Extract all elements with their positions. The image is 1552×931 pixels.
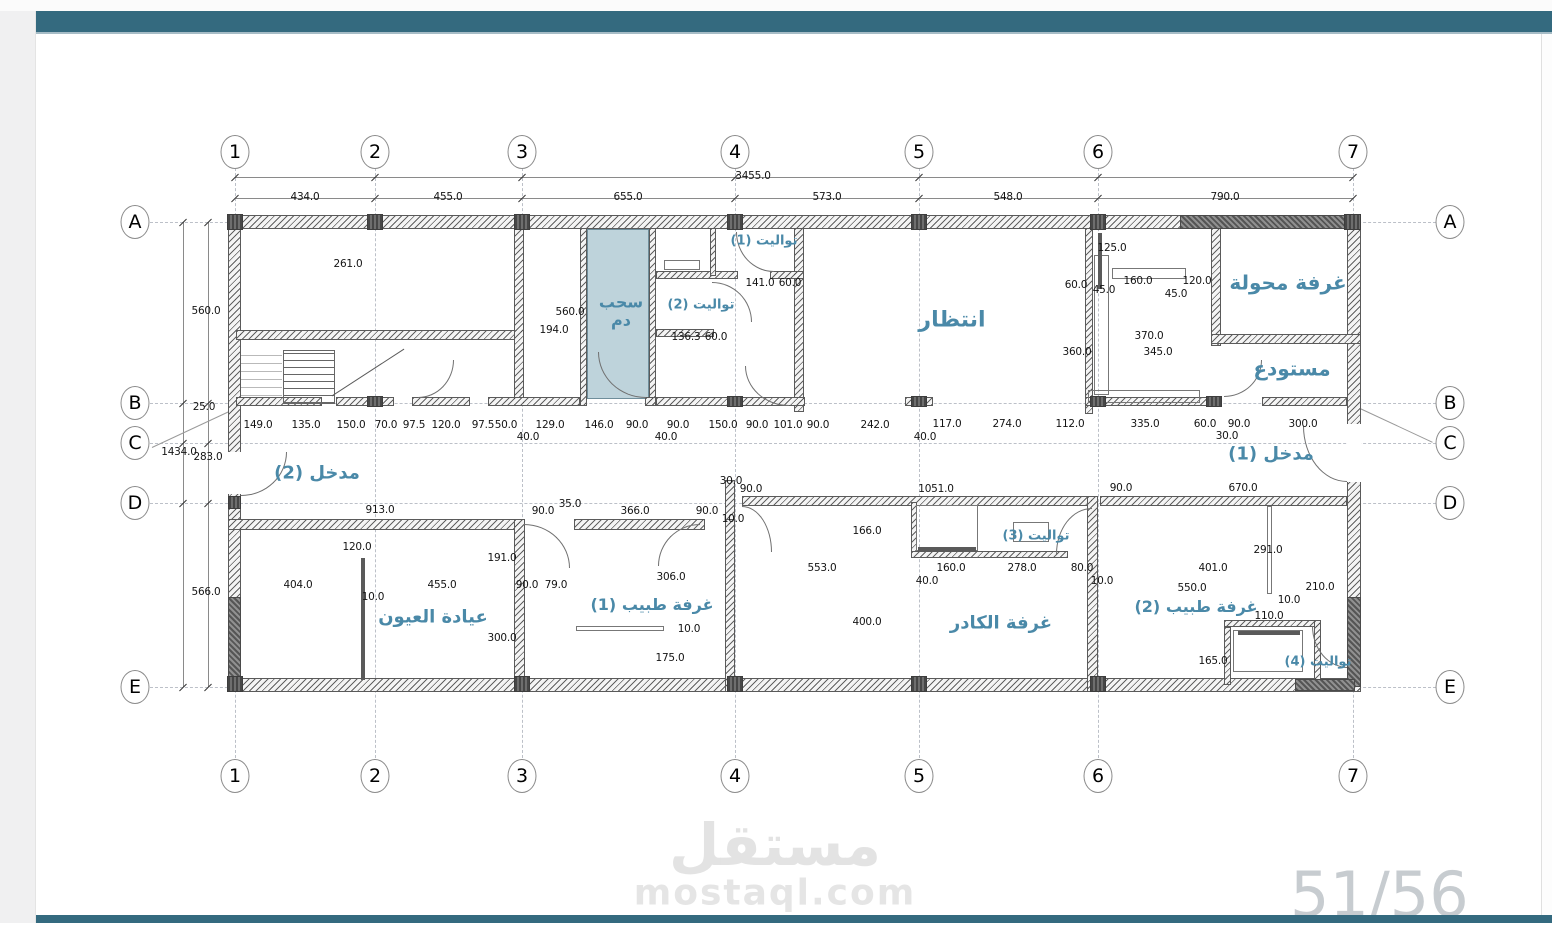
grid-bubble-bottom-1: 1 — [221, 759, 250, 793]
dimension-label: 90.0 — [807, 419, 830, 431]
watermark-latin: mostaql.com — [634, 873, 917, 914]
column — [1206, 396, 1222, 407]
wall — [514, 228, 524, 406]
dimension-label: 278.0 — [1007, 562, 1036, 574]
column — [227, 676, 243, 692]
dimension-label: 70.0 — [375, 419, 398, 431]
dimension-label: 90.0 — [746, 419, 769, 431]
partition — [361, 558, 365, 680]
dimension-label: 191.0 — [487, 552, 516, 564]
dimension-label: 129.0 — [535, 419, 564, 431]
toilet3-counter-edge — [918, 547, 976, 551]
grid-bubble-top-5: 5 — [905, 135, 934, 169]
column — [727, 214, 743, 230]
wall — [228, 519, 520, 530]
wall — [656, 271, 738, 279]
wall — [911, 551, 1068, 558]
dimension-label: 160.0 — [936, 562, 965, 574]
room-label-toilet-4: تواليت (4) — [1285, 656, 1352, 671]
dimension-label: 10.0 — [678, 623, 701, 635]
dimension-label: 455.0 — [427, 579, 456, 591]
header-bar — [36, 11, 1552, 34]
footer-bar — [36, 915, 1552, 923]
wall — [1211, 228, 1221, 346]
dimension-label: 60.0 — [779, 277, 802, 289]
wall — [1262, 397, 1347, 406]
dimension-label: 90.0 — [1110, 482, 1133, 494]
shelf — [576, 626, 664, 631]
column — [727, 396, 743, 407]
grid-bubble-left-E: E — [121, 670, 150, 704]
dimension-label: 434.0 — [290, 191, 319, 203]
grid-bubble-left-D: D — [121, 486, 150, 520]
dimension-label: 110.0 — [1254, 610, 1283, 622]
column — [1090, 676, 1106, 692]
dimension-label: 35.0 — [559, 498, 582, 510]
dimension-label: 125.0 — [1097, 242, 1126, 254]
door-arc — [742, 506, 772, 552]
grid-bubble-bottom-2: 2 — [361, 759, 390, 793]
room-label-toilet-1: تواليت (1) — [731, 235, 798, 250]
dimension-label: 345.0 — [1143, 346, 1172, 358]
grid-bubble-right-E: E — [1436, 670, 1465, 704]
dimension-label: 335.0 — [1130, 418, 1159, 430]
dimension-label: 120.0 — [342, 541, 371, 553]
column — [514, 214, 530, 230]
dimension-label: 913.0 — [365, 504, 394, 516]
wall — [236, 330, 522, 340]
dimension-label: 50.0 — [495, 419, 518, 431]
dimension-label: 306.0 — [656, 571, 685, 583]
grid-leader-c-left — [152, 408, 236, 448]
wall-dark-segment — [228, 597, 241, 680]
column — [228, 496, 241, 509]
stairs-dashed — [240, 350, 282, 404]
dimension-label: 1434.0 — [161, 446, 197, 458]
column — [911, 676, 927, 692]
door-opening — [228, 452, 241, 494]
dimension-label: 261.0 — [333, 258, 362, 270]
dimension-label: 550.0 — [1177, 582, 1206, 594]
grid-bubble-right-D: D — [1436, 486, 1465, 520]
dimension-label: 60.0 — [1194, 418, 1217, 430]
dim-line-top-segments — [235, 198, 1353, 199]
stairs-diagonal — [332, 349, 405, 397]
wall — [794, 228, 804, 412]
grid-bubble-left-A: A — [121, 205, 150, 239]
dimension-label: 90.0 — [1228, 418, 1251, 430]
room-label-storage: مستودع — [1253, 358, 1330, 381]
sink — [664, 260, 700, 270]
wall — [412, 397, 470, 406]
room-label-toilet-3: تواليت (3) — [1003, 530, 1070, 545]
room-label-waiting: انتظار — [918, 307, 985, 332]
grid-bubble-top-2: 2 — [361, 135, 390, 169]
dimension-label: 90.0 — [532, 505, 555, 517]
toilet4-counter-edge — [1238, 631, 1300, 635]
room-label-blood-draw: سحب دم — [599, 294, 643, 331]
grid-bubble-right-A: A — [1436, 205, 1465, 239]
door-opening — [1347, 424, 1361, 482]
dimension-label: 97.5 — [403, 419, 426, 431]
dimension-label: 670.0 — [1228, 482, 1257, 494]
wall — [488, 397, 580, 406]
wall — [336, 397, 394, 406]
dimension-label: 117.0 — [932, 418, 961, 430]
dimension-label: 1051.0 — [918, 483, 954, 495]
watermark-arabic: مستقل — [669, 811, 881, 879]
grid-bubble-top-7: 7 — [1339, 135, 1368, 169]
dimension-label: 300.0 — [487, 632, 516, 644]
dimension-label: 553.0 — [807, 562, 836, 574]
dimension-label: 60.0 — [705, 331, 728, 343]
room-label-entrance-2: مدخل (2) — [274, 464, 360, 485]
column — [911, 214, 927, 230]
dimension-label: 60.0 — [1065, 279, 1088, 291]
dimension-label: 165.0 — [1198, 655, 1227, 667]
page-left-margin — [0, 0, 36, 923]
dimension-label: 45.0 — [1165, 288, 1188, 300]
grid-bubble-right-C: C — [1436, 426, 1465, 460]
dimension-label: 560.0 — [555, 306, 584, 318]
wall-dark-segment — [1347, 597, 1361, 687]
column — [727, 676, 743, 692]
column — [227, 214, 243, 230]
dimension-label: 136.3 — [671, 331, 700, 343]
dimension-label: 90.0 — [696, 505, 719, 517]
dimension-label: 141.0 — [745, 277, 774, 289]
dimension-label: 25.0 — [193, 401, 216, 413]
dimension-label: 573.0 — [812, 191, 841, 203]
grid-bubble-top-1: 1 — [221, 135, 250, 169]
dimension-label: 655.0 — [613, 191, 642, 203]
dimension-label: 149.0 — [243, 419, 272, 431]
dimension-label: 90.0 — [667, 419, 690, 431]
door-arc — [524, 524, 570, 568]
dimension-label: 40.0 — [655, 431, 678, 443]
dimension-label: 97.5 — [472, 419, 495, 431]
door-arc — [658, 524, 700, 566]
wall-dark-segment — [1295, 679, 1355, 691]
dimension-label: 112.0 — [1055, 418, 1084, 430]
grid-bubble-bottom-3: 3 — [508, 759, 537, 793]
dimension-label: 10.0 — [362, 591, 385, 603]
floor-plan-drawing: 11223344556677AABBCCDDEE3455.0434.0455.0… — [0, 0, 1552, 923]
dimension-label: 90.0 — [740, 483, 763, 495]
column — [514, 676, 530, 692]
wall — [725, 519, 735, 692]
dimension-label: 40.0 — [916, 575, 939, 587]
dimension-label: 175.0 — [655, 652, 684, 664]
room-label-doctor-1: غرفة طبيب (1) — [590, 596, 713, 614]
dimension-label: 79.0 — [545, 579, 568, 591]
dimension-label: 30.0 — [1216, 430, 1239, 442]
wall-exterior-bottom — [228, 678, 1360, 692]
room-label-toilet-2: تواليت (2) — [668, 299, 735, 314]
dimension-label: 360.0 — [1062, 346, 1091, 358]
dimension-label: 166.0 — [852, 525, 881, 537]
dimension-label: 80.0 — [1071, 562, 1094, 574]
stairs — [283, 350, 335, 404]
dimension-label: 150.0 — [708, 419, 737, 431]
dimension-label: 455.0 — [433, 191, 462, 203]
dimension-label: 146.0 — [584, 419, 613, 431]
dimension-label: 160.0 — [1123, 275, 1152, 287]
dimension-label: 242.0 — [860, 419, 889, 431]
dimension-label: 401.0 — [1198, 562, 1227, 574]
wall — [1211, 334, 1361, 344]
floor-plan-page: 11223344556677AABBCCDDEE3455.0434.0455.0… — [0, 0, 1552, 923]
dimension-label: 10.0 — [1091, 575, 1114, 587]
grid-leader-c-right — [1360, 408, 1433, 443]
dimension-label: 790.0 — [1210, 191, 1239, 203]
dimension-label: 120.0 — [431, 419, 460, 431]
dimension-label: 90.0 — [626, 419, 649, 431]
dimension-label: 300.0 — [1288, 418, 1317, 430]
grid-bubble-top-4: 4 — [721, 135, 750, 169]
grid-bubble-left-B: B — [121, 386, 150, 420]
column — [911, 396, 927, 407]
room-label-transformer: غرفة محولة — [1229, 272, 1346, 295]
grid-bubble-top-6: 6 — [1084, 135, 1113, 169]
door-arc — [418, 360, 454, 398]
dimension-label: 40.0 — [914, 431, 937, 443]
dimension-label: 40.0 — [517, 431, 540, 443]
dimension-label: 291.0 — [1253, 544, 1282, 556]
wall — [649, 228, 656, 406]
dimension-label: 101.0 — [773, 419, 802, 431]
grid-bubble-left-C: C — [121, 426, 150, 460]
dim-line-top-overall — [235, 177, 1353, 178]
column — [367, 396, 383, 407]
dimension-label: 400.0 — [852, 616, 881, 628]
dimension-label: 548.0 — [993, 191, 1022, 203]
grid-bubble-bottom-5: 5 — [905, 759, 934, 793]
dimension-label: 120.0 — [1182, 275, 1211, 287]
dimension-label: 10.0 — [1278, 594, 1301, 606]
dimension-label: 274.0 — [992, 418, 1021, 430]
room-label-doctor-2: غرفة طبيب (2) — [1134, 598, 1257, 616]
grid-bubble-bottom-7: 7 — [1339, 759, 1368, 793]
column — [1090, 214, 1106, 230]
wall — [1085, 228, 1093, 414]
dimension-label: 566.0 — [191, 586, 220, 598]
page-top-strip — [0, 0, 1552, 11]
page-right-edge — [1541, 11, 1552, 915]
dimension-label: 135.0 — [291, 419, 320, 431]
dimension-label: 404.0 — [283, 579, 312, 591]
wall — [1100, 496, 1347, 506]
dimension-label: 210.0 — [1305, 581, 1334, 593]
toilet3-counter — [916, 505, 978, 551]
wall-dark-segment — [1180, 215, 1345, 229]
dimension-label: 90.0 — [516, 579, 539, 591]
dimension-label: 366.0 — [620, 505, 649, 517]
wall — [645, 397, 656, 406]
column — [1344, 214, 1361, 230]
room-label-entrance-1: مدخل (1) — [1228, 445, 1314, 466]
dimension-label: 194.0 — [539, 324, 568, 336]
dimension-label: 150.0 — [336, 419, 365, 431]
room-label-staff-room: غرفة الكادر — [950, 614, 1052, 635]
column — [1090, 396, 1106, 407]
room-label-eye-clinic: عيادة العيون — [378, 608, 488, 629]
column — [367, 214, 383, 230]
dimension-label: 45.0 — [1093, 284, 1116, 296]
dimension-label: 560.0 — [191, 305, 220, 317]
grid-bubble-bottom-4: 4 — [721, 759, 750, 793]
dimension-label: 283.0 — [193, 451, 222, 463]
grid-bubble-right-B: B — [1436, 386, 1465, 420]
dimension-label: 10.0 — [722, 513, 745, 525]
wall — [710, 228, 716, 276]
grid-bubble-bottom-6: 6 — [1084, 759, 1113, 793]
dimension-label: 3455.0 — [735, 170, 771, 182]
grid-bubble-top-3: 3 — [508, 135, 537, 169]
dimension-label: 370.0 — [1134, 330, 1163, 342]
